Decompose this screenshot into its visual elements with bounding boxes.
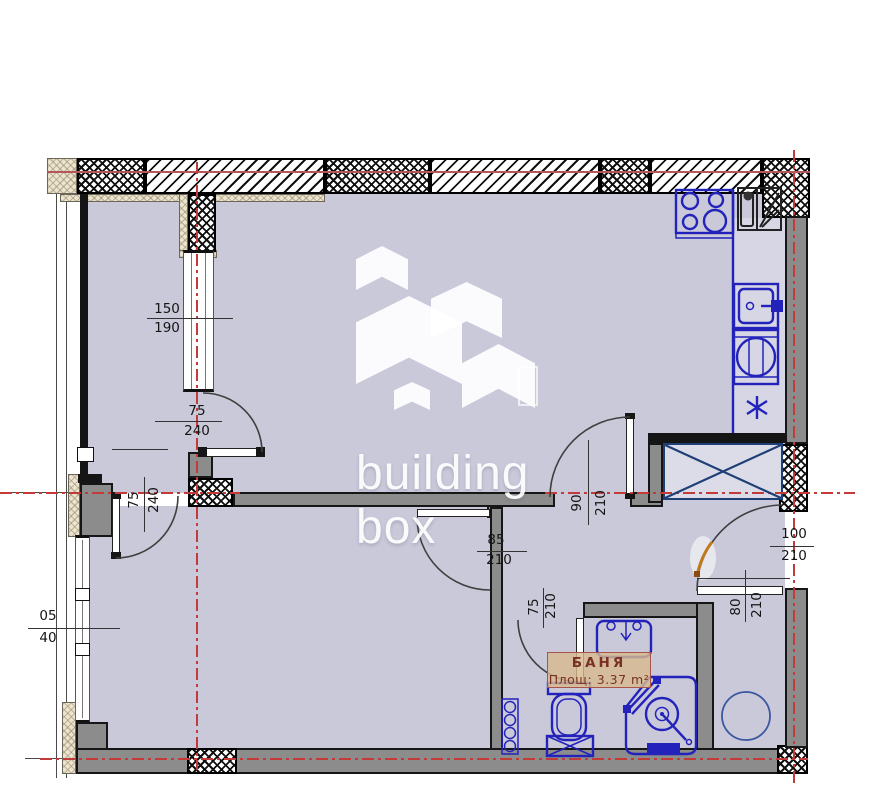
dim-living-door-w: 90 xyxy=(570,488,584,518)
dim-window-left-h: 190 xyxy=(144,321,190,336)
stove-burner-1 xyxy=(682,193,698,209)
living-door-arc xyxy=(550,417,630,497)
bath-sink-faucet xyxy=(621,621,631,640)
kitchen-sink-faucet xyxy=(771,300,783,312)
watermark-text-line2: box xyxy=(356,504,436,552)
balcony-door-arc xyxy=(203,393,262,452)
dim-entrance-w: 100 xyxy=(772,527,816,542)
boiler-circle xyxy=(722,692,770,740)
dim-bedroom-left-vline xyxy=(144,477,145,532)
dim-balcony-door-h: 240 xyxy=(172,424,222,439)
dim-entrance-line xyxy=(770,546,814,547)
dim-bedroom-door-w: 85 xyxy=(473,533,519,548)
dim-window-left-w: 150 xyxy=(144,302,190,317)
dim-entrance-h: 210 xyxy=(772,549,816,564)
shower-arm xyxy=(662,714,686,740)
dim-window-bottom-line xyxy=(28,628,120,629)
entrance-marker-dot xyxy=(694,571,700,577)
dim-bedroom-left-h: 240 xyxy=(147,480,161,520)
shower-drain xyxy=(687,740,692,745)
dim-bedroom-door-h: 210 xyxy=(476,553,522,568)
fridge-snowflake-icon xyxy=(747,396,767,419)
dim-corridor-hline xyxy=(697,578,790,579)
dim-window-bottom-h: 40 xyxy=(30,631,66,646)
bath-sink-tap-1 xyxy=(607,622,615,630)
dim-corridor-w: 80 xyxy=(729,592,743,622)
stove-tray xyxy=(676,233,733,238)
floor-plan-canvas: 150 190 75 240 75 240 90 210 85 210 100 … xyxy=(0,0,871,785)
dim-living-door-vline xyxy=(588,440,589,525)
radiator-seg-1 xyxy=(505,702,516,713)
dim-corridor-vline xyxy=(745,570,746,622)
watermark-text-line1: building xyxy=(356,450,529,498)
dim-window-left-line xyxy=(147,318,233,319)
shower-pedestal xyxy=(647,743,680,754)
dim-window-bottom-w: 05 xyxy=(30,609,66,624)
dim-bedroom-left-tick xyxy=(112,449,168,450)
dim-bath-door-h: 210 xyxy=(544,586,558,626)
stove-burner-2 xyxy=(709,193,723,207)
dim-bedroom-left-w: 75 xyxy=(127,485,141,515)
kitchen-sink-drain xyxy=(747,303,754,310)
bathroom-area: Площ: 3.37 m² xyxy=(548,672,650,687)
bathroom-name: БАНЯ xyxy=(548,655,650,671)
stove-burner-4 xyxy=(704,210,726,232)
dim-balcony-door-line xyxy=(155,421,222,422)
watermark-square-icon xyxy=(518,366,538,406)
fixtures-overlay xyxy=(0,0,871,785)
bathroom-label-box: БАНЯ Площ: 3.37 m² xyxy=(547,652,651,688)
radiator-seg-2 xyxy=(505,715,516,726)
radiator-seg-4 xyxy=(505,741,516,752)
stove-burner-3 xyxy=(683,215,697,229)
shower-door-cap-2 xyxy=(653,676,661,684)
dim-living-door-h: 210 xyxy=(594,483,608,523)
corner-sink-faucet xyxy=(744,192,753,201)
dim-corridor-h: 210 xyxy=(750,585,764,625)
washer-drum xyxy=(737,338,775,376)
dim-bath-door-w: 75 xyxy=(527,592,541,622)
shower-door-cap-1 xyxy=(623,705,631,713)
toilet-bowl-inner xyxy=(557,699,581,735)
radiator-seg-3 xyxy=(505,728,516,739)
dim-balcony-door-w: 75 xyxy=(172,404,222,419)
bath-sink-tap-2 xyxy=(633,622,641,630)
drainer-diagonal-1 xyxy=(760,193,779,227)
